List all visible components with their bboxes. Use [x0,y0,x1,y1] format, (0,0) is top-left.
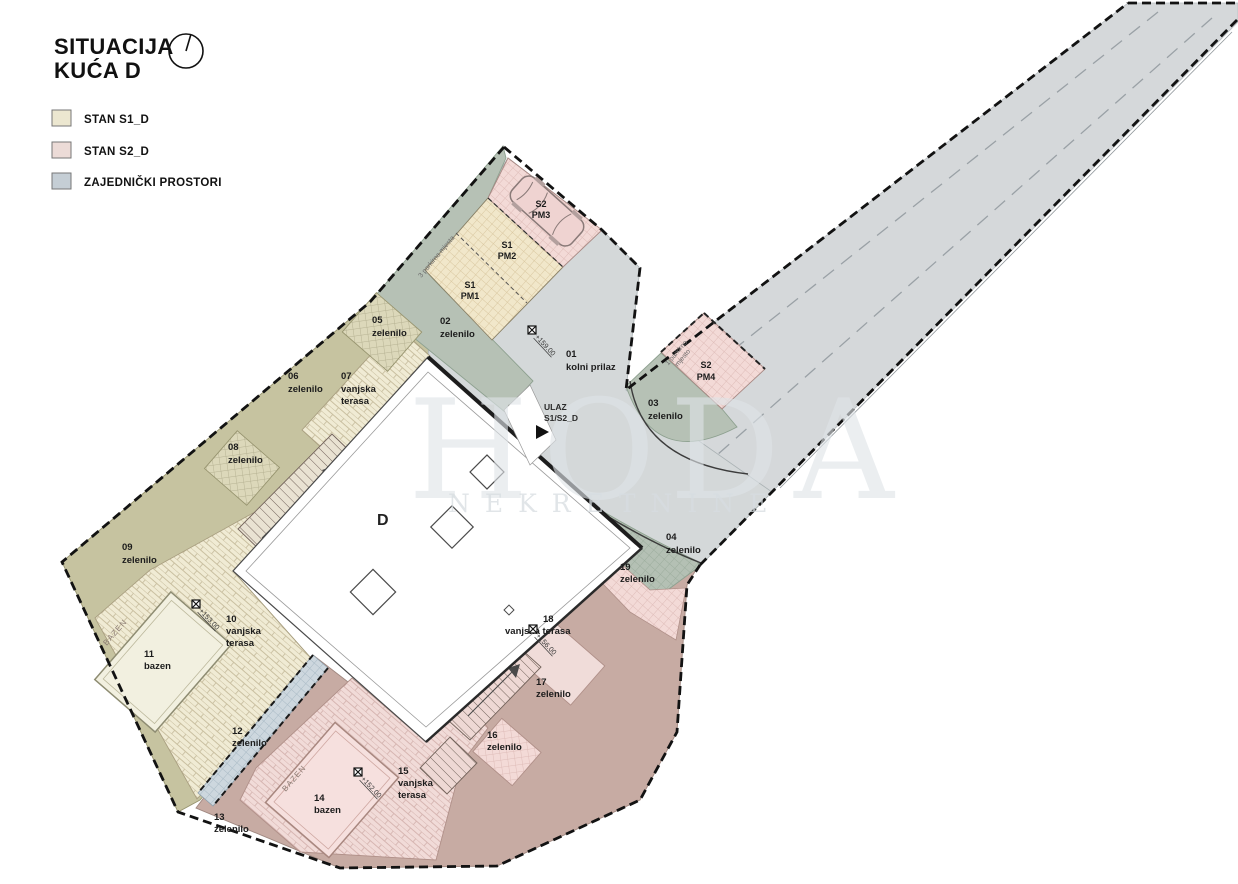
zone-15-number: 15 [398,766,409,777]
zone-03-number: 03 [648,398,659,409]
zone-08-number: 08 [228,442,239,453]
north-compass-icon [169,34,203,68]
zone-13-name: zelenilo [214,824,249,835]
zone-04-number: 04 [666,532,677,543]
zone-10-number: 10 [226,614,237,625]
zone-05-name: zelenilo [372,328,407,339]
zone-11-number: 11 [144,649,155,660]
entrance-line2: S1/S2_D [544,413,578,423]
zone-07-number: 07 [341,371,352,382]
page-title-line2: KUĆA D [54,58,141,83]
zone-09-number: 09 [122,542,133,553]
zone-14-name: bazen [314,805,341,816]
entrance-line1: ULAZ [544,402,567,412]
zone-03-name: zelenilo [648,411,683,422]
zone-02-number: 02 [440,316,451,327]
zone-16-number: 16 [487,730,498,741]
benchmark-icon [354,768,362,776]
zone-12-name: zelenilo [232,738,267,749]
watermark: HODA NEKRETNINE [408,370,908,531]
zone-18-number: 18 [543,614,554,625]
benchmark-icon [528,326,536,334]
legend-swatch-s2 [52,142,71,158]
zone-11-name: bazen [144,661,171,672]
zone-16-name: zelenilo [487,742,522,753]
zone-17-number: 17 [536,677,547,688]
zone-10-name: vanjska [226,626,262,637]
legend-label-common: ZAJEDNIČKI PROSTORI [84,176,222,189]
legend-swatch-common [52,173,71,189]
parking-pm2-unit: S1 [501,240,512,250]
parking-pm4-unit: S2 [700,360,711,370]
parking-pm4-code: PM4 [697,372,716,382]
zone-06-name: zelenilo [288,384,323,395]
parking-pm2-code: PM2 [498,251,517,261]
legend-label-s1: STAN S1_D [84,114,149,126]
zone-07-name2: terasa [341,396,370,407]
zone-02-name: zelenilo [440,329,475,340]
zone-15-name2: terasa [398,790,427,801]
parking-pm3-unit: S2 [535,199,546,209]
site-plan-svg: HODA NEKRETNINE SITUACIJA KUĆA D STAN S1… [0,0,1238,884]
zone-19-number: 19 [620,562,631,573]
zone-01-name: kolni prilaz [566,362,616,373]
zone-14-number: 14 [314,793,325,804]
legend-label-s2: STAN S2_D [84,146,149,158]
building-label: D [377,512,389,529]
zone-13-number: 13 [214,812,225,823]
zone-15-name: vanjska [398,778,434,789]
benchmark-icon [529,625,537,633]
zone-07-name: vanjska [341,384,377,395]
zone-01-number: 01 [566,349,577,360]
zone-05-number: 05 [372,315,383,326]
benchmark-icon [192,600,200,608]
legend: STAN S1_D STAN S2_D ZAJEDNIČKI PROSTORI [52,110,222,189]
parking-pm3-code: PM3 [532,210,551,220]
legend-swatch-s1 [52,110,71,126]
zone-17-name: zelenilo [536,689,571,700]
watermark-line2: NEKRETNINE [448,489,782,518]
zone-19-name: zelenilo [620,574,655,585]
parking-pm1-unit: S1 [464,280,475,290]
page-title-line1: SITUACIJA [54,34,174,59]
zone-06-number: 06 [288,371,299,382]
parking-pm1-code: PM1 [461,291,480,301]
zone-08-name: zelenilo [228,455,263,466]
zone-10-name2: terasa [226,638,255,649]
zone-12-number: 12 [232,726,243,737]
zone-04-name: zelenilo [666,545,701,556]
zone-09-name: zelenilo [122,555,157,566]
